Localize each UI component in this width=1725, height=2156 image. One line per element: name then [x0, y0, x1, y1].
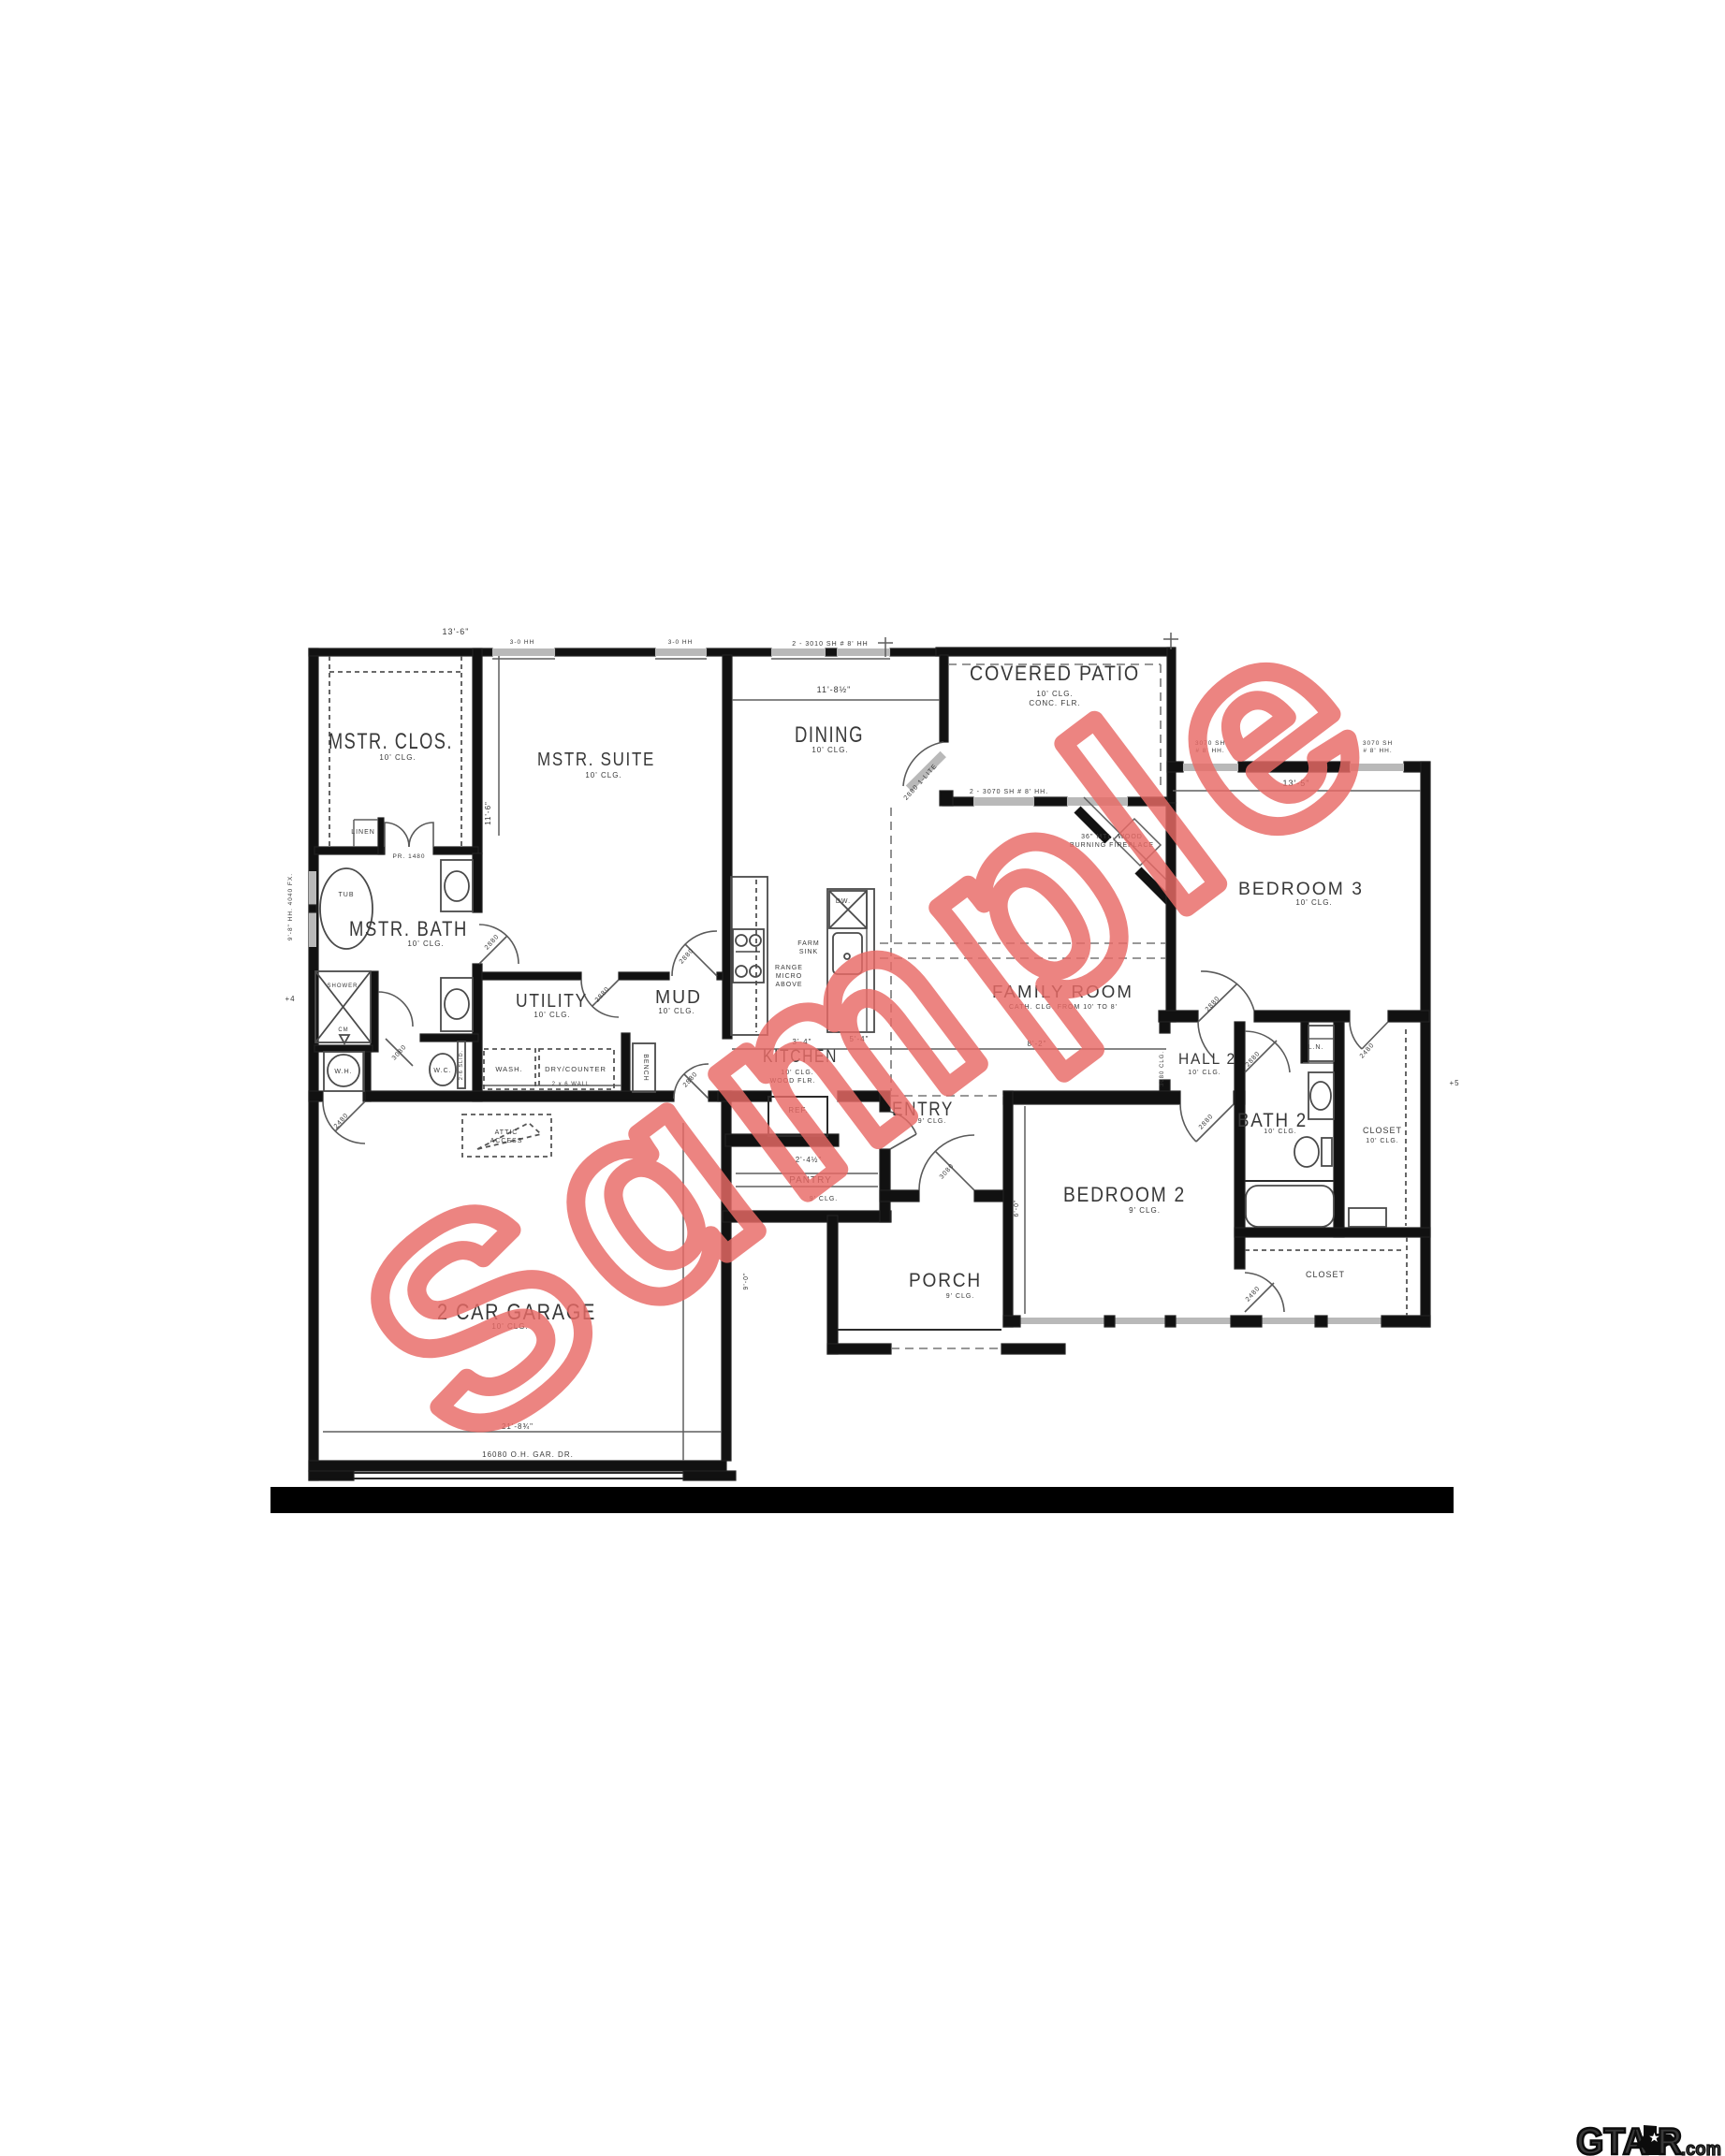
svg-text:W.H.: W.H.	[334, 1069, 352, 1075]
svg-text:MSTR. CLOS.: MSTR. CLOS.	[329, 729, 453, 754]
svg-text:6'-0": 6'-0"	[1014, 1200, 1020, 1217]
svg-text:3-0 HH: 3-0 HH	[510, 639, 535, 646]
svg-text:10' CLG.: 10' CLG.	[379, 753, 416, 762]
svg-text:2 - 3010 SH # 8' HH: 2 - 3010 SH # 8' HH	[792, 641, 868, 648]
svg-text:2-6 SLID.: 2-6 SLID.	[459, 1050, 464, 1080]
svg-text:PORCH: PORCH	[909, 1270, 982, 1291]
svg-text:UTILITY: UTILITY	[516, 991, 588, 1012]
svg-text:3080 CLG.: 3080 CLG.	[1160, 1051, 1165, 1086]
svg-text:10' CLG.: 10' CLG.	[1188, 1070, 1221, 1076]
svg-text:3-0 HH: 3-0 HH	[668, 639, 694, 646]
svg-text:10' CLG.: 10' CLG.	[534, 1011, 570, 1019]
svg-text:10' CLG.: 10' CLG.	[1366, 1138, 1398, 1144]
svg-text:10' CLG.: 10' CLG.	[1295, 898, 1332, 907]
svg-text:+4: +4	[285, 995, 295, 1003]
svg-text:LINEN: LINEN	[351, 829, 375, 836]
svg-text:DINING: DINING	[795, 722, 864, 748]
svg-text:9'-8" HH. 4040 FX.: 9'-8" HH. 4040 FX.	[287, 873, 294, 940]
svg-text:9' CLG.: 9' CLG.	[1129, 1206, 1161, 1215]
svg-text:11'-8½": 11'-8½"	[817, 685, 852, 694]
svg-text:11'-6": 11'-6"	[484, 801, 492, 825]
svg-text:GTA: GTA	[1576, 2121, 1648, 2156]
svg-text:BEDROOM 2: BEDROOM 2	[1063, 1183, 1186, 1206]
svg-text:9' CLG.: 9' CLG.	[946, 1293, 975, 1300]
svg-text:CM: CM	[338, 1027, 348, 1033]
svg-text:L.N.: L.N.	[1308, 1044, 1324, 1051]
svg-text:13'-6": 13'-6"	[443, 627, 470, 636]
svg-text:W.C.: W.C.	[433, 1068, 451, 1074]
svg-text:10' CLG.: 10' CLG.	[811, 746, 848, 754]
svg-text:MSTR. SUITE: MSTR. SUITE	[537, 750, 655, 770]
svg-text:WASH.: WASH.	[495, 1065, 522, 1073]
svg-text:CLOSET: CLOSET	[1363, 1126, 1402, 1135]
svg-text:TUB: TUB	[339, 892, 355, 898]
svg-text:MSTR. BATH: MSTR. BATH	[349, 917, 468, 940]
svg-text:.com: .com	[1681, 2139, 1721, 2156]
svg-text:10' CLG.: 10' CLG.	[585, 771, 621, 779]
svg-text:10' CLG.: 10' CLG.	[1264, 1129, 1296, 1135]
svg-text:+5: +5	[1449, 1079, 1459, 1087]
svg-text:R: R	[1658, 2121, 1682, 2156]
svg-text:PR. 1480: PR. 1480	[392, 853, 425, 860]
svg-text:SHOWER: SHOWER	[328, 983, 358, 989]
svg-text:HALL 2: HALL 2	[1178, 1050, 1236, 1068]
svg-text:10' CLG.: 10' CLG.	[407, 940, 444, 948]
svg-text:CLOSET: CLOSET	[1306, 1270, 1345, 1279]
